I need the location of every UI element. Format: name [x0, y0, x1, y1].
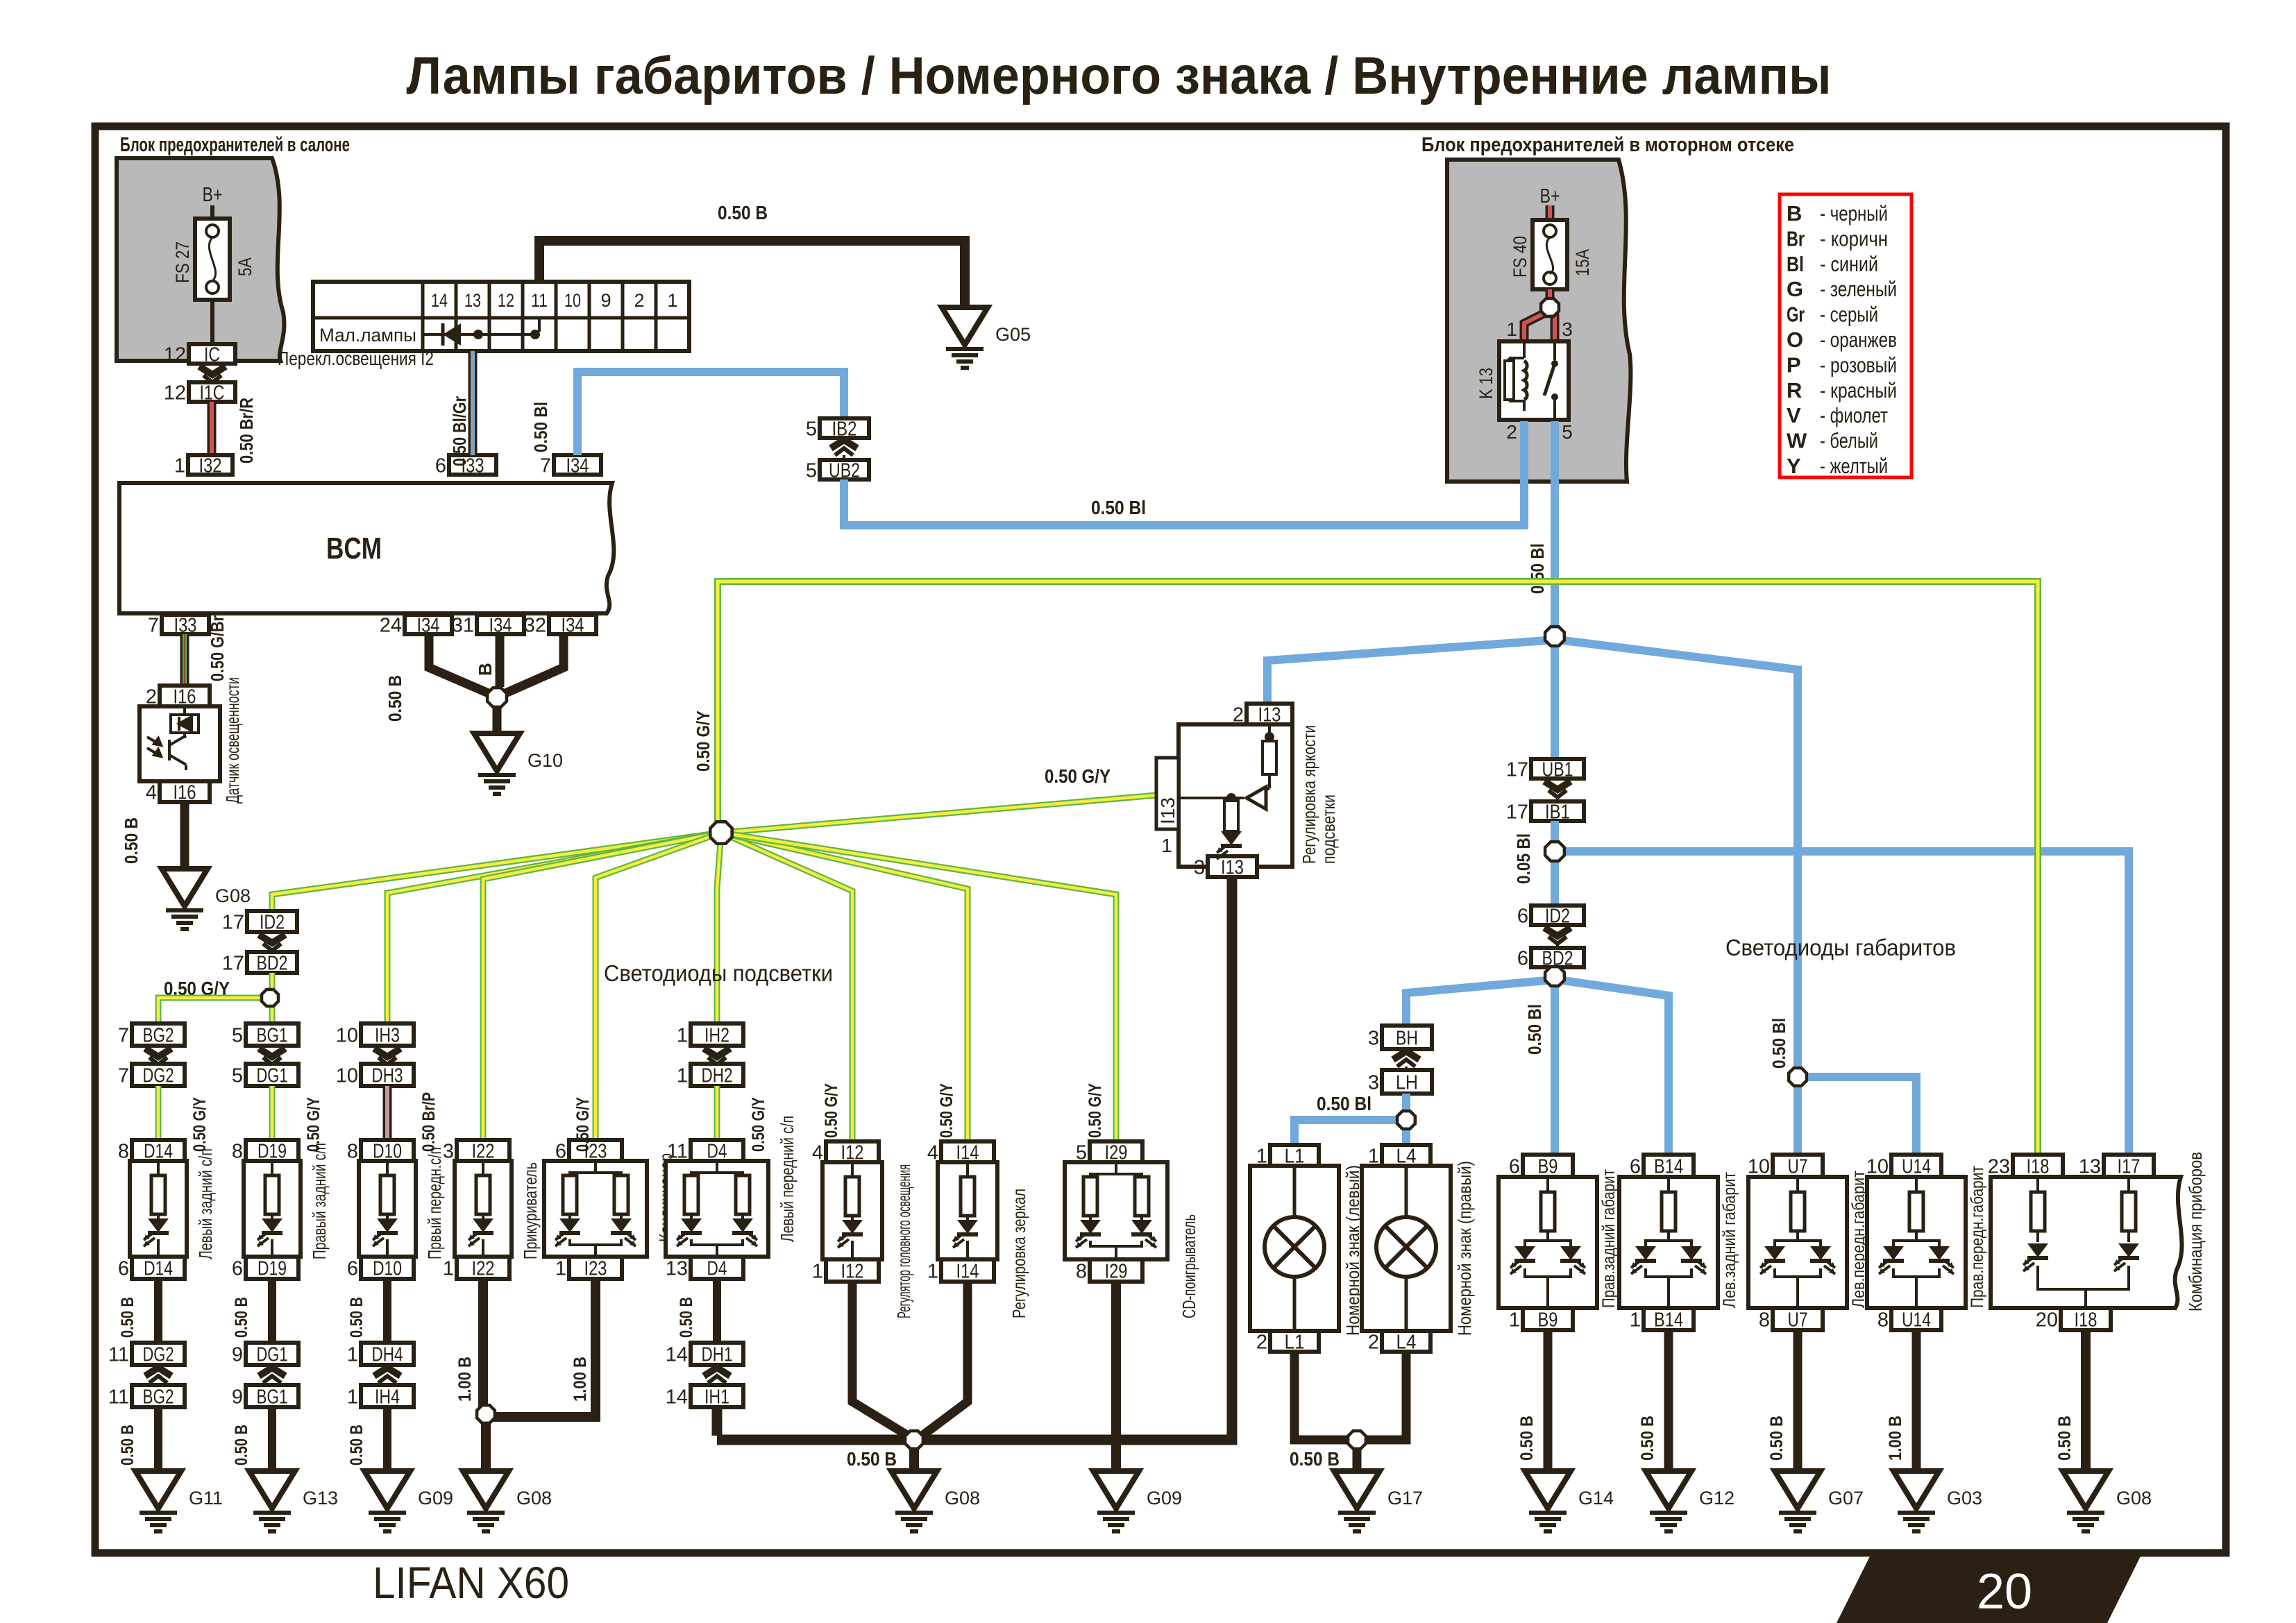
- svg-text:23: 23: [1988, 1155, 2010, 1178]
- svg-text:10: 10: [564, 290, 581, 311]
- svg-text:0.05 Bl: 0.05 Bl: [1513, 833, 1534, 884]
- svg-text:0.50 Bl: 0.50 Bl: [530, 402, 551, 452]
- svg-text:8: 8: [1076, 1260, 1087, 1282]
- svg-text:5: 5: [232, 1064, 243, 1087]
- svg-text:5: 5: [806, 459, 817, 482]
- svg-text:G05: G05: [995, 324, 1031, 345]
- svg-text:- белый: - белый: [1820, 429, 1878, 453]
- svg-text:DG1: DG1: [257, 1343, 288, 1366]
- svg-text:Светодиоды подсветки: Светодиоды подсветки: [604, 960, 833, 986]
- svg-text:3: 3: [1368, 1027, 1379, 1049]
- svg-text:0.50 B: 0.50 B: [1767, 1416, 1787, 1461]
- svg-text:DH4: DH4: [372, 1343, 403, 1366]
- svg-text:10: 10: [336, 1064, 358, 1087]
- svg-text:BG1: BG1: [257, 1386, 288, 1408]
- svg-text:5: 5: [232, 1024, 243, 1046]
- svg-text:I33: I33: [174, 614, 197, 636]
- svg-text:2: 2: [634, 290, 644, 311]
- svg-text:- желтый: - желтый: [1820, 454, 1888, 478]
- svg-text:- фиолет: - фиолет: [1820, 403, 1888, 427]
- svg-text:I16: I16: [174, 781, 196, 804]
- svg-text:BCM: BCM: [326, 532, 382, 566]
- svg-text:9: 9: [232, 1343, 243, 1366]
- svg-text:1: 1: [927, 1260, 938, 1282]
- svg-text:20: 20: [2036, 1309, 2058, 1331]
- svg-text:ID2: ID2: [260, 911, 285, 933]
- svg-text:DH2: DH2: [702, 1064, 733, 1087]
- svg-text:7: 7: [118, 1024, 129, 1046]
- svg-text:6: 6: [347, 1257, 358, 1280]
- svg-text:I13: I13: [1157, 797, 1179, 824]
- svg-text:1: 1: [347, 1343, 358, 1366]
- svg-text:1: 1: [555, 1257, 566, 1280]
- svg-text:17: 17: [1506, 801, 1528, 823]
- svg-text:B: B: [1787, 201, 1802, 226]
- svg-text:0.50 B: 0.50 B: [385, 675, 405, 722]
- svg-text:I17: I17: [2118, 1155, 2141, 1178]
- svg-text:0.50 B: 0.50 B: [232, 1297, 251, 1338]
- svg-text:3: 3: [1368, 1071, 1379, 1094]
- svg-text:G17: G17: [1387, 1488, 1423, 1509]
- svg-text:8: 8: [347, 1140, 358, 1162]
- svg-text:13: 13: [666, 1257, 688, 1280]
- svg-text:U7: U7: [1788, 1309, 1808, 1331]
- svg-text:10: 10: [336, 1024, 358, 1046]
- svg-text:8: 8: [1877, 1309, 1889, 1331]
- svg-text:BD2: BD2: [257, 952, 288, 974]
- svg-text:B14: B14: [1654, 1155, 1683, 1178]
- svg-text:G07: G07: [1828, 1488, 1864, 1509]
- svg-text:Датчик освещенности: Датчик освещенности: [222, 677, 243, 804]
- svg-text:12: 12: [164, 343, 186, 366]
- svg-text:B+: B+: [203, 184, 223, 206]
- svg-text:0.50 B: 0.50 B: [118, 1297, 137, 1338]
- svg-text:14: 14: [431, 290, 448, 311]
- svg-text:- оранжев: - оранжев: [1820, 328, 1897, 352]
- svg-text:0.50 Bl: 0.50 Bl: [1524, 1004, 1545, 1055]
- svg-text:10: 10: [1866, 1155, 1889, 1178]
- svg-text:UB2: UB2: [829, 459, 860, 482]
- svg-text:Прав.задний габарит: Прав.задний габарит: [1599, 1169, 1619, 1308]
- svg-text:24: 24: [380, 614, 402, 636]
- svg-text:Правый задний с/п: Правый задний с/п: [309, 1143, 330, 1259]
- svg-text:I34: I34: [566, 454, 589, 477]
- svg-text:0.50 B: 0.50 B: [1517, 1416, 1537, 1461]
- svg-text:BH: BH: [1396, 1027, 1418, 1049]
- svg-text:2: 2: [1233, 704, 1244, 726]
- svg-text:IH2: IH2: [704, 1024, 729, 1046]
- svg-text:2: 2: [1368, 1331, 1379, 1353]
- svg-text:1: 1: [667, 290, 677, 311]
- svg-text:IB1: IB1: [1545, 801, 1570, 823]
- svg-text:0.50 G/Y: 0.50 G/Y: [573, 1097, 593, 1152]
- svg-text:G08: G08: [516, 1488, 552, 1509]
- svg-text:Левый передний с/п: Левый передний с/п: [777, 1116, 797, 1242]
- svg-text:0.50 Br/P: 0.50 Br/P: [419, 1092, 439, 1152]
- svg-text:IH3: IH3: [375, 1024, 400, 1046]
- svg-text:0.50 Bl: 0.50 Bl: [1317, 1093, 1371, 1114]
- svg-text:0.50 B: 0.50 B: [847, 1448, 897, 1470]
- svg-text:31: 31: [452, 614, 474, 636]
- svg-text:Комбинация приборов: Комбинация приборов: [2185, 1152, 2206, 1311]
- svg-text:Мал.лампы: Мал.лампы: [319, 325, 416, 346]
- svg-text:20: 20: [1977, 1564, 2032, 1620]
- svg-text:BG2: BG2: [143, 1024, 174, 1046]
- svg-text:G09: G09: [418, 1488, 453, 1509]
- svg-text:DG2: DG2: [143, 1343, 174, 1366]
- svg-text:5: 5: [806, 418, 817, 440]
- svg-text:13: 13: [464, 290, 481, 311]
- svg-text:DG1: DG1: [257, 1064, 288, 1087]
- svg-text:G09: G09: [1147, 1488, 1182, 1509]
- svg-text:K 13: K 13: [1476, 368, 1496, 399]
- svg-text:L4: L4: [1396, 1331, 1417, 1353]
- svg-text:BG1: BG1: [257, 1024, 288, 1046]
- svg-text:I13: I13: [1258, 704, 1281, 726]
- svg-text:1: 1: [812, 1260, 823, 1282]
- svg-text:17: 17: [222, 952, 244, 974]
- svg-text:0.50 Bl: 0.50 Bl: [1091, 497, 1146, 518]
- svg-text:G13: G13: [303, 1488, 338, 1509]
- svg-text:I13: I13: [1221, 856, 1244, 878]
- svg-text:0.50 G/Y: 0.50 G/Y: [937, 1083, 956, 1138]
- svg-text:B: B: [475, 663, 496, 676]
- svg-text:P: P: [1787, 352, 1801, 377]
- svg-text:0.50 B: 0.50 B: [232, 1425, 251, 1465]
- svg-text:R: R: [1787, 378, 1802, 402]
- svg-text:Лампы габаритов / Номерного зн: Лампы габаритов / Номерного знака / Внут…: [407, 46, 1832, 105]
- svg-text:6: 6: [1517, 947, 1528, 969]
- svg-text:LH: LH: [1396, 1071, 1418, 1094]
- svg-text:15A: 15A: [1572, 249, 1593, 276]
- svg-text:1.00 B: 1.00 B: [1886, 1416, 1905, 1461]
- svg-text:- розовый: - розовый: [1820, 352, 1897, 377]
- svg-text:BG2: BG2: [143, 1386, 174, 1408]
- svg-text:U7: U7: [1788, 1155, 1808, 1178]
- svg-text:W: W: [1787, 429, 1807, 453]
- svg-text:1: 1: [1509, 1309, 1520, 1331]
- svg-text:6: 6: [435, 454, 446, 477]
- svg-text:9: 9: [600, 290, 611, 311]
- svg-text:DH3: DH3: [372, 1064, 403, 1087]
- svg-text:0.50 G/Y: 0.50 G/Y: [190, 1097, 210, 1152]
- svg-text:7: 7: [540, 454, 551, 477]
- svg-text:B14: B14: [1654, 1309, 1683, 1331]
- svg-text:UB1: UB1: [1542, 758, 1573, 781]
- svg-text:0.50 B: 0.50 B: [1638, 1416, 1657, 1461]
- svg-text:I32: I32: [199, 454, 222, 477]
- svg-text:G11: G11: [189, 1488, 223, 1509]
- svg-text:1: 1: [1161, 835, 1172, 856]
- svg-text:8: 8: [1759, 1309, 1770, 1331]
- svg-text:3: 3: [443, 1140, 454, 1162]
- svg-text:Блок предохранителей в салоне: Блок предохранителей в салоне: [120, 134, 350, 156]
- svg-text:G03: G03: [1947, 1488, 1982, 1509]
- svg-text:0.50 B: 0.50 B: [347, 1297, 366, 1338]
- svg-text:Прав.передн.габарит: Прав.передн.габарит: [1968, 1166, 1987, 1308]
- svg-text:7: 7: [148, 614, 159, 636]
- svg-text:I22: I22: [472, 1257, 495, 1280]
- svg-text:0.50 Bl: 0.50 Bl: [1527, 543, 1548, 594]
- svg-text:I18: I18: [2027, 1155, 2050, 1178]
- svg-text:6: 6: [1517, 905, 1528, 927]
- svg-text:G08: G08: [215, 885, 251, 906]
- svg-text:0.50 G/Y: 0.50 G/Y: [749, 1097, 768, 1152]
- svg-text:IH4: IH4: [375, 1386, 400, 1408]
- svg-text:14: 14: [666, 1343, 688, 1366]
- svg-text:- зеленый: - зеленый: [1820, 277, 1897, 301]
- svg-text:0.50 G/Y: 0.50 G/Y: [822, 1083, 841, 1138]
- svg-text:3: 3: [1562, 318, 1573, 340]
- svg-text:- черный: - черный: [1820, 201, 1888, 226]
- svg-text:7: 7: [118, 1064, 129, 1087]
- svg-text:0.50 Bl/Gr: 0.50 Bl/Gr: [449, 396, 470, 466]
- svg-text:G12: G12: [1699, 1488, 1734, 1509]
- svg-text:Перекл.освещения I2: Перекл.освещения I2: [278, 348, 434, 369]
- svg-text:32: 32: [524, 614, 546, 636]
- svg-text:Првый передн.с/п: Првый передн.с/п: [424, 1147, 445, 1259]
- svg-text:Br: Br: [1787, 226, 1805, 250]
- svg-text:Y: Y: [1787, 454, 1801, 478]
- svg-text:0.50 G/Y: 0.50 G/Y: [693, 711, 714, 772]
- svg-text:CD-поигрыватель: CD-поигрыватель: [1179, 1214, 1199, 1318]
- svg-text:0.50 B: 0.50 B: [347, 1425, 366, 1465]
- svg-text:FS 27: FS 27: [172, 241, 193, 283]
- svg-text:0.50 B: 0.50 B: [677, 1297, 696, 1338]
- svg-text:- коричн: - коричн: [1820, 226, 1888, 250]
- svg-text:Регулировка яркости: Регулировка яркости: [1299, 725, 1319, 864]
- svg-text:12: 12: [498, 290, 514, 311]
- svg-text:D19: D19: [258, 1257, 287, 1280]
- svg-text:1: 1: [443, 1257, 454, 1280]
- svg-text:DG2: DG2: [143, 1064, 174, 1087]
- svg-text:I23: I23: [584, 1257, 607, 1280]
- svg-text:V: V: [1787, 403, 1801, 427]
- svg-text:8: 8: [232, 1140, 243, 1162]
- svg-text:5A: 5A: [235, 257, 255, 276]
- svg-text:17: 17: [1506, 758, 1528, 781]
- svg-text:Регулятор головного освещения: Регулятор головного освещения: [893, 1164, 914, 1318]
- svg-text:0.50 G/Br: 0.50 G/Br: [207, 615, 228, 681]
- svg-text:8: 8: [118, 1140, 129, 1162]
- svg-text:- синий: - синий: [1820, 252, 1878, 276]
- svg-text:I34: I34: [417, 614, 440, 636]
- svg-text:I18: I18: [2075, 1309, 2097, 1331]
- svg-text:17: 17: [222, 911, 244, 933]
- svg-text:13: 13: [2079, 1155, 2101, 1178]
- svg-text:I1C: I1C: [200, 382, 225, 404]
- svg-text:Лев.задний габарит: Лев.задний габарит: [1720, 1172, 1739, 1308]
- svg-text:1: 1: [1506, 318, 1517, 340]
- svg-text:0.50 G/Y: 0.50 G/Y: [1045, 765, 1111, 787]
- svg-text:G08: G08: [945, 1488, 980, 1509]
- svg-text:Блок предохранителей в моторно: Блок предохранителей в моторном отсеке: [1421, 134, 1794, 156]
- svg-text:I29: I29: [1105, 1260, 1128, 1282]
- svg-text:B+: B+: [1540, 185, 1560, 207]
- svg-text:1.00 B: 1.00 B: [571, 1357, 590, 1402]
- svg-text:1: 1: [1630, 1309, 1641, 1331]
- svg-text:D14: D14: [144, 1257, 173, 1280]
- svg-text:G: G: [1787, 277, 1803, 301]
- svg-text:Номерной знак (правый): Номерной знак (правый): [1454, 1161, 1475, 1336]
- svg-text:0.50 B: 0.50 B: [2055, 1416, 2075, 1461]
- svg-text:6: 6: [118, 1257, 129, 1280]
- svg-text:Bl: Bl: [1787, 252, 1804, 276]
- svg-text:4: 4: [146, 781, 157, 804]
- svg-text:L1: L1: [1285, 1331, 1305, 1353]
- svg-text:G10: G10: [527, 750, 563, 771]
- svg-text:2: 2: [1506, 421, 1517, 443]
- svg-text:G14: G14: [1578, 1488, 1614, 1509]
- svg-text:- красный: - красный: [1820, 378, 1897, 402]
- svg-text:Регулировка зеркал: Регулировка зеркал: [1008, 1189, 1029, 1318]
- svg-text:6: 6: [1630, 1155, 1641, 1178]
- svg-text:подсветки: подсветки: [1318, 794, 1339, 864]
- svg-text:5: 5: [1562, 421, 1573, 443]
- svg-text:ID2: ID2: [1545, 905, 1570, 927]
- svg-text:0.50 B: 0.50 B: [718, 202, 768, 223]
- svg-text:11: 11: [108, 1386, 129, 1408]
- svg-text:9: 9: [232, 1386, 243, 1408]
- svg-text:- серый: - серый: [1820, 303, 1878, 327]
- svg-text:1: 1: [677, 1064, 688, 1087]
- svg-text:12: 12: [164, 382, 186, 404]
- svg-text:I12: I12: [841, 1260, 864, 1282]
- svg-text:6: 6: [232, 1257, 243, 1280]
- svg-text:2: 2: [1256, 1331, 1267, 1353]
- svg-text:3: 3: [1194, 856, 1205, 878]
- svg-text:I14: I14: [956, 1260, 979, 1282]
- svg-text:B9: B9: [1538, 1155, 1558, 1178]
- svg-text:0.50 B: 0.50 B: [121, 817, 142, 864]
- svg-text:D10: D10: [373, 1257, 402, 1280]
- svg-text:0.50 B: 0.50 B: [118, 1425, 137, 1465]
- svg-text:IC: IC: [204, 343, 220, 366]
- svg-text:1: 1: [347, 1386, 358, 1408]
- svg-text:DH1: DH1: [702, 1343, 733, 1366]
- svg-text:6: 6: [1509, 1155, 1520, 1178]
- svg-text:Левый задний с/п: Левый задний с/п: [195, 1148, 216, 1259]
- svg-text:0.50 B: 0.50 B: [1290, 1448, 1340, 1470]
- svg-text:IH1: IH1: [704, 1386, 729, 1408]
- svg-text:14: 14: [666, 1386, 688, 1408]
- svg-text:I34: I34: [489, 614, 512, 636]
- svg-text:0.50 Bl: 0.50 Bl: [1769, 1018, 1789, 1069]
- svg-text:Прикуриватель: Прикуриватель: [520, 1162, 541, 1259]
- svg-text:Светодиоды габаритов: Светодиоды габаритов: [1725, 935, 1956, 960]
- svg-text:I34: I34: [562, 614, 584, 636]
- svg-text:D4: D4: [707, 1257, 727, 1280]
- svg-text:0.50 G/Y: 0.50 G/Y: [1086, 1083, 1105, 1138]
- svg-text:0.50 Br/R: 0.50 Br/R: [236, 398, 257, 464]
- svg-text:11: 11: [108, 1343, 129, 1366]
- svg-text:B9: B9: [1538, 1309, 1558, 1331]
- svg-text:FS 40: FS 40: [1510, 236, 1530, 278]
- svg-text:1: 1: [174, 454, 185, 477]
- svg-text:Gr: Gr: [1787, 303, 1805, 327]
- svg-text:G08: G08: [2116, 1488, 2152, 1509]
- svg-text:11: 11: [531, 290, 548, 311]
- svg-text:1.00 B: 1.00 B: [455, 1357, 475, 1402]
- svg-text:O: O: [1787, 328, 1803, 352]
- svg-text:U14: U14: [1902, 1309, 1931, 1331]
- svg-text:1: 1: [677, 1024, 688, 1046]
- svg-text:U14: U14: [1902, 1155, 1931, 1178]
- svg-text:LIFAN X60: LIFAN X60: [373, 1558, 569, 1608]
- svg-text:10: 10: [1748, 1155, 1770, 1178]
